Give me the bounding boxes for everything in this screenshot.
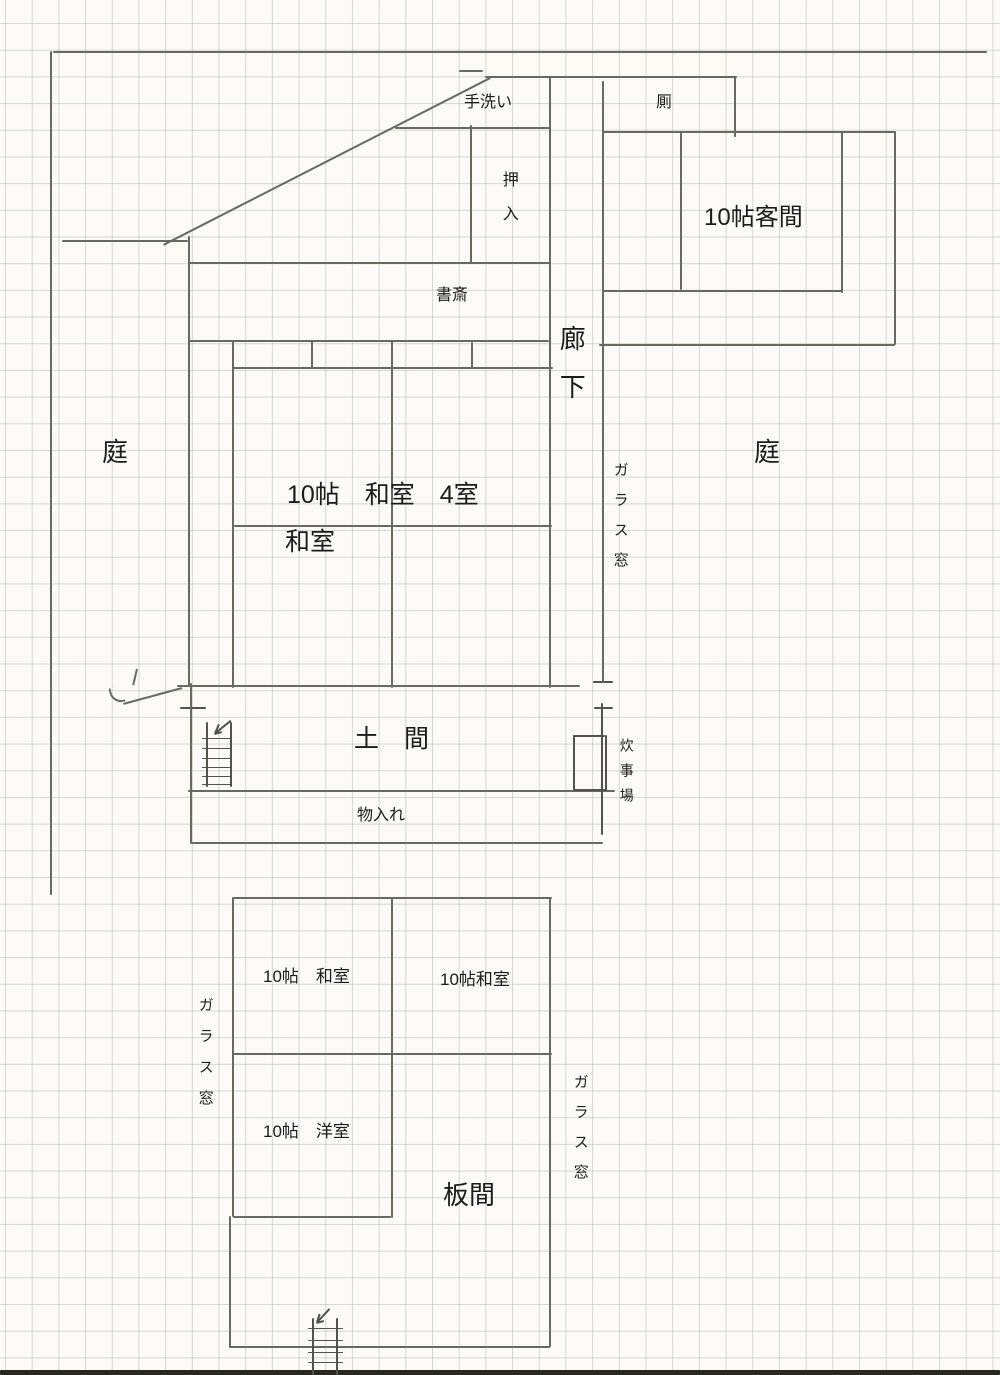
wall-segment bbox=[190, 683, 192, 843]
label-itanoma: 板間 bbox=[443, 1182, 495, 1209]
wall-segment bbox=[594, 707, 613, 709]
label-washitsu_se: 10帖和室 bbox=[440, 971, 510, 989]
label-suijiba: 炊事場 bbox=[619, 738, 634, 813]
wall-segment bbox=[680, 131, 682, 290]
label-doma: 土 間 bbox=[354, 726, 429, 752]
wall-segment bbox=[177, 685, 580, 687]
label-niwa_west: 庭 bbox=[102, 439, 128, 466]
wall-segment bbox=[573, 735, 575, 790]
wall-segment bbox=[602, 131, 895, 133]
wall-segment bbox=[233, 1216, 391, 1218]
wall-segment bbox=[188, 236, 190, 686]
wall-segment bbox=[485, 76, 737, 78]
wall-segment bbox=[599, 344, 895, 346]
wall-segment bbox=[188, 262, 550, 264]
label-glass_east: ガラス窓 bbox=[612, 462, 628, 582]
label-kawaya: 厠 bbox=[656, 95, 672, 112]
label-rouka: 廊下 bbox=[557, 325, 584, 421]
wall-segment bbox=[230, 722, 232, 787]
label-niwa_east: 庭 bbox=[754, 439, 780, 466]
wall-segment bbox=[601, 703, 603, 835]
wall-segment bbox=[395, 127, 550, 129]
floor-plan-canvas: 手洗い厠押入10帖客間書斎廊下庭庭10帖 和室 4室和室ガラス窓土 間炊事場物入… bbox=[0, 0, 1000, 1375]
wall-segment-diagonal bbox=[163, 77, 491, 246]
label-tearai: 手洗い bbox=[464, 95, 512, 112]
wall-segment bbox=[189, 340, 549, 342]
wall-segment bbox=[53, 51, 987, 53]
wall-segment bbox=[841, 131, 843, 293]
wall-segment bbox=[470, 125, 472, 263]
wall-segment bbox=[549, 897, 551, 1347]
label-washitsu: 和室 bbox=[285, 529, 335, 555]
wall-segment-diagonal bbox=[123, 687, 183, 705]
wall-segment bbox=[734, 77, 736, 137]
wall-segment bbox=[188, 790, 615, 792]
wall-segment bbox=[233, 367, 553, 369]
label-washitsu_4: 10帖 和室 4室 bbox=[287, 482, 479, 508]
wall-segment bbox=[229, 1216, 231, 1347]
wall-segment bbox=[391, 341, 393, 688]
wall-segment bbox=[894, 131, 896, 345]
wall-segment bbox=[336, 1318, 338, 1375]
hook-mark bbox=[108, 686, 125, 705]
label-glass_south: ガラス窓 bbox=[572, 1074, 588, 1194]
label-kyakuma: 10帖客間 bbox=[704, 205, 803, 230]
wall-segment bbox=[549, 76, 551, 688]
label-oshiire: 押入 bbox=[499, 171, 516, 239]
wall-segment bbox=[602, 81, 604, 683]
wall-segment bbox=[232, 897, 234, 1217]
wall-segment bbox=[180, 707, 206, 709]
wall-segment bbox=[206, 722, 208, 787]
wall-segment bbox=[190, 842, 603, 844]
wall-segment bbox=[50, 51, 52, 895]
wall-segment bbox=[312, 1318, 314, 1375]
wall-segment bbox=[229, 1346, 550, 1348]
wall-segment bbox=[391, 897, 393, 1218]
label-glass_west: ガラス窓 bbox=[197, 997, 213, 1121]
wall-segment bbox=[0, 1370, 1000, 1375]
label-yoshitsu: 10帖 洋室 bbox=[263, 1123, 350, 1141]
wall-segment bbox=[471, 342, 473, 368]
wall-segment bbox=[234, 525, 552, 527]
label-washitsu_sw: 10帖 和室 bbox=[263, 968, 350, 986]
wall-segment bbox=[459, 70, 483, 72]
wall-segment bbox=[232, 340, 234, 688]
wall-segment-diagonal bbox=[214, 731, 222, 735]
wall-segment bbox=[311, 341, 313, 368]
wall-segment-diagonal bbox=[132, 669, 138, 686]
label-monoire: 物入れ bbox=[357, 808, 405, 825]
label-shosai: 書斎 bbox=[436, 288, 468, 305]
wall-segment bbox=[605, 735, 607, 790]
wall-segment bbox=[602, 290, 842, 292]
wall-segment-diagonal bbox=[316, 1320, 324, 1324]
